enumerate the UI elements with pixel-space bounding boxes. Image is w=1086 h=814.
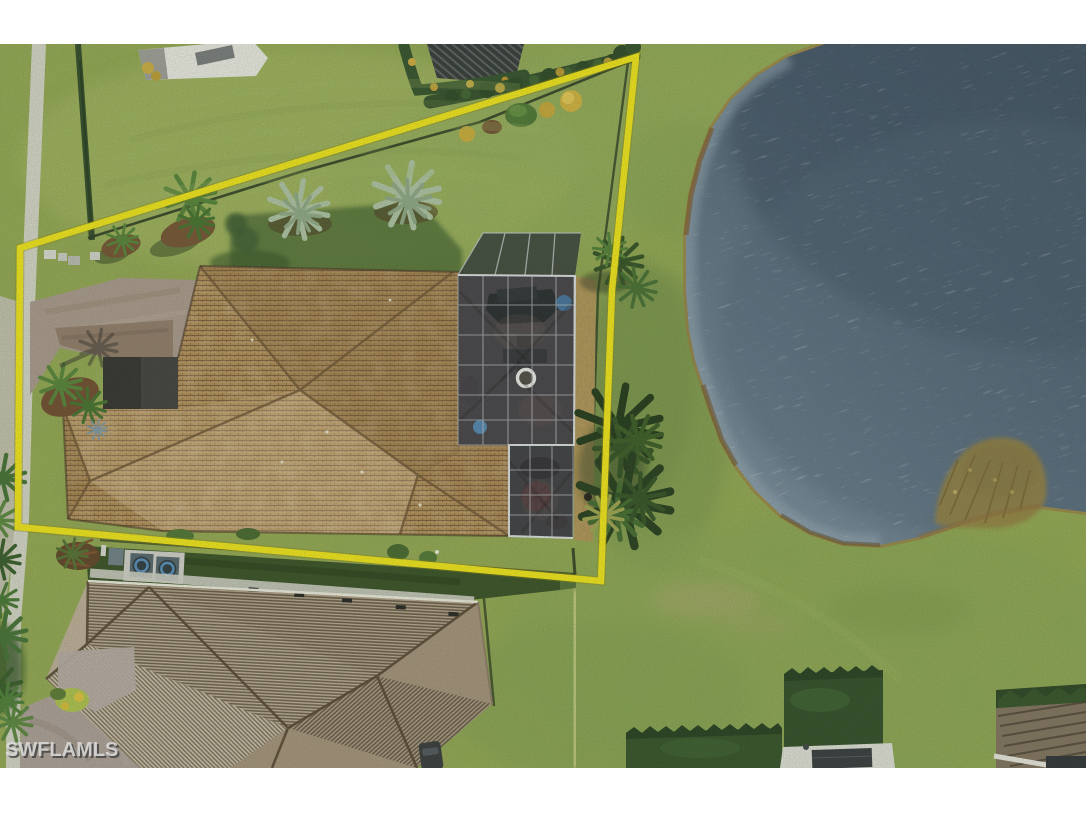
svg-text:SWFLAMLS: SWFLAMLS — [5, 739, 118, 761]
